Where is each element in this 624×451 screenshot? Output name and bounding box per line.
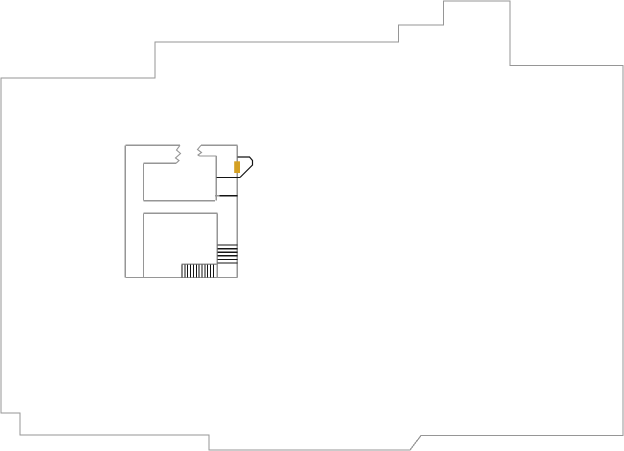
cad-viewport xyxy=(0,0,624,451)
building-outer-boundary xyxy=(1,1,623,450)
floor-plan-svg xyxy=(0,0,624,451)
door-marker xyxy=(234,161,240,173)
